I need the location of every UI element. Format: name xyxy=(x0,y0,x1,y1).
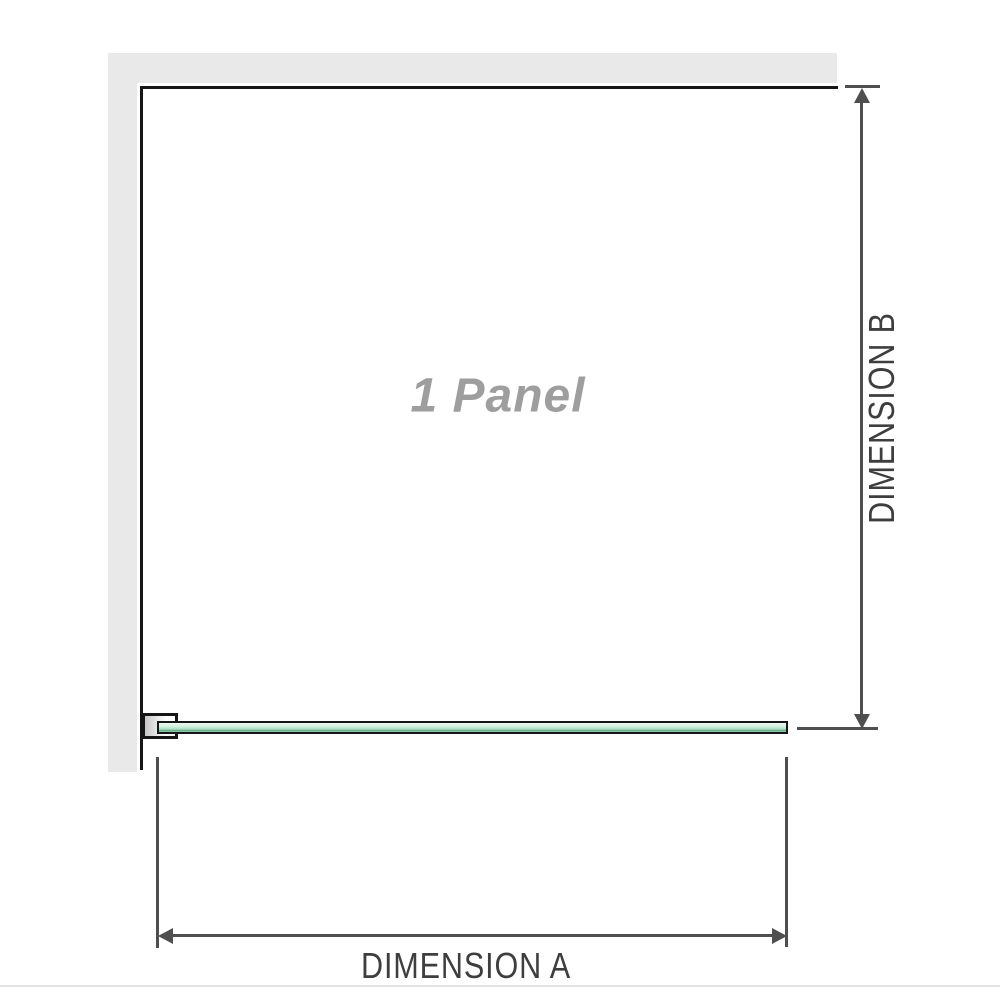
panel-outline-top xyxy=(140,86,838,89)
dimension-a-right-extension-line xyxy=(785,757,788,947)
panel-dimension-diagram: 1 Panel DIMENSION B DIMENSION A xyxy=(0,0,1000,1000)
dimension-b-label: DIMENSION B xyxy=(861,312,903,524)
wall-left-strip xyxy=(108,53,137,772)
glass-panel xyxy=(157,721,788,734)
wall-top-strip xyxy=(108,53,837,83)
panel-outline-left xyxy=(140,86,143,770)
arrow-up-icon xyxy=(854,88,870,103)
dimension-a-left-extension-line xyxy=(156,757,159,948)
dimension-a-line xyxy=(170,934,775,937)
arrow-down-icon xyxy=(854,714,870,729)
arrow-right-icon xyxy=(772,928,787,944)
dimension-a-label: DIMENSION A xyxy=(361,945,571,987)
arrow-left-icon xyxy=(158,928,173,944)
bottom-divider xyxy=(0,985,1000,987)
panel-count-label: 1 Panel xyxy=(410,369,585,424)
